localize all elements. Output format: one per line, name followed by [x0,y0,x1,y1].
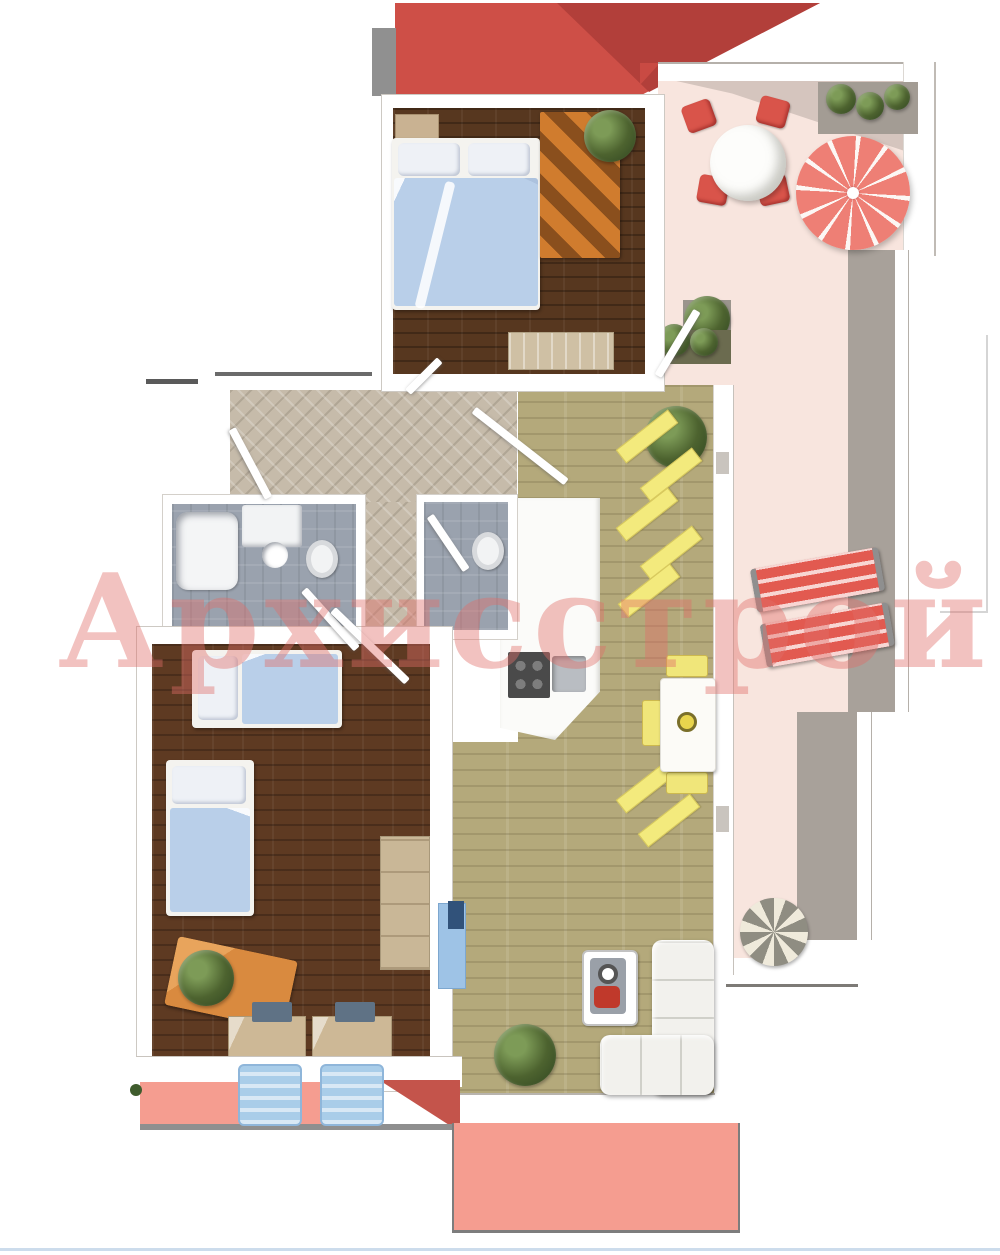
terrace-round-table [710,125,786,201]
plant-terrace-top-2 [856,92,884,120]
sun-lounger-2 [759,602,895,668]
sun-loungers [749,542,890,679]
children-wardrobe [380,836,430,970]
terrace-flower-plant [740,898,808,966]
balcony-corner-plant [130,1084,142,1096]
wall-dash [146,379,198,384]
balcony-left-edge [140,1124,460,1130]
play-mat-toy [594,986,620,1008]
plant-terrace-box-2 [690,328,718,356]
bathroom-sink-bowl [262,542,288,568]
plant-living-bottom [494,1024,556,1086]
page-bottom-line [0,1248,1000,1251]
living-terrace-window-2 [716,806,729,832]
kitchen-sink [552,656,586,692]
children-bed-top-blanket [242,654,338,724]
children-bed-left-pillow [172,766,246,804]
bathtub [176,512,238,590]
plant-children-desk [178,950,234,1006]
parasol-center [847,187,859,199]
bathroom-toilet [306,540,338,578]
living-bottom-wall [448,1093,715,1125]
neighbour-line-horizontal [940,611,988,613]
play-mat-ring [598,964,618,984]
neighbour-line-vertical [986,335,988,613]
sofa-horizontal [600,1035,714,1095]
bed-pillow-right [468,143,530,176]
cooktop [508,652,550,698]
plant-terrace-top-1 [826,84,856,114]
hallway-floor-east [448,390,517,502]
children-bed-left-blanket [170,808,250,912]
hallway-outer-wall-line [215,372,372,376]
plant-bedroom [584,110,636,162]
children-bed-top-pillow [198,656,238,720]
terrace-planter-right-low [797,712,857,940]
terrace-wall-top [658,62,908,81]
dining-chair-left [642,700,662,746]
balcony-chair-2 [320,1064,384,1126]
terrace-parapet-right-low [857,712,872,940]
desk-item-1 [252,1002,292,1022]
terrace-wall-bottom [726,958,858,987]
balcony-right-floor [452,1123,740,1233]
bedroom-bench [508,332,614,370]
floor-plan: Архисстрой [0,0,1000,1255]
bed-blanket [394,178,538,306]
dining-plate [677,712,697,732]
plant-terrace-top-3 [884,84,910,110]
bathroom-vanity [242,505,302,547]
bed-pillow-left [398,143,460,176]
dining-chair-bottom [666,772,708,794]
wc-toilet [472,532,504,570]
living-terrace-window-1 [716,452,729,474]
terrace-parapet-right-mid [895,250,909,712]
balcony-chair-1 [238,1064,302,1126]
roof-edge-wall [372,28,396,96]
desk-item-2 [335,1002,375,1022]
dining-chair-top [666,655,708,677]
blue-shelf-dark [448,901,464,929]
